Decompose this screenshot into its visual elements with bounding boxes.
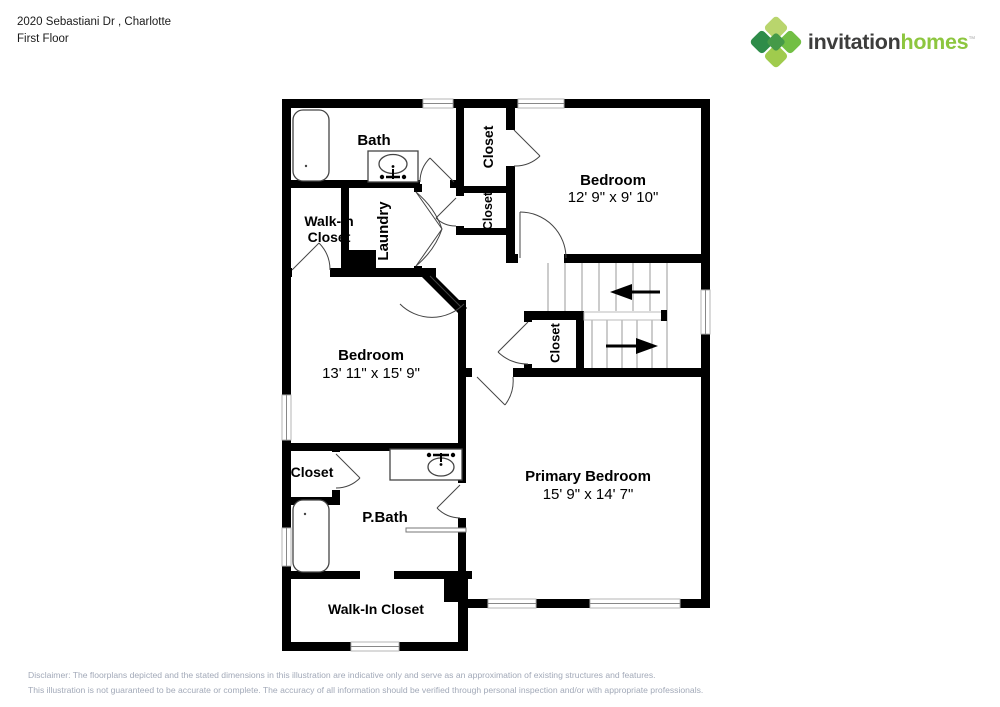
sink-icon [368,151,418,182]
room-label-closet-bedroom2: Closet [480,125,496,168]
room-label-primary-bedroom: Primary Bedroom [525,468,651,485]
disclaimer-block: Disclaimer: The floorplans depicted and … [28,668,703,697]
window-icon [282,395,291,440]
room-label-closet-hall: Closet [481,191,495,230]
floorplan-page: 2020 Sebastiani Dr , Charlotte First Flo… [0,0,1000,707]
disclaimer-line-2: This illustration is not guaranteed to b… [28,683,703,698]
window-icon [590,599,680,608]
sink-icon [390,449,462,480]
room-dims-bedroom2: 12' 9" x 9' 10" [568,189,659,206]
towel-bar-icon [406,528,466,532]
room-label-bedroom2: Bedroom [580,172,646,189]
window-icon [423,99,453,108]
stair-arrow-down-icon [606,338,658,354]
bathtub-icon [293,110,329,181]
bathtub-icon [293,500,329,572]
disclaimer-line-1: Disclaimer: The floorplans depicted and … [28,668,703,683]
door-arc [514,130,540,166]
window-icon [282,528,291,566]
door-arc [420,158,454,182]
door-arc [336,454,360,488]
door-arc [292,243,330,270]
stair-arrow-up-icon [610,284,660,300]
bifold-door [416,192,442,266]
door-arc [498,322,528,364]
room-label-bedroom1: Bedroom [338,347,404,364]
door-arc [520,212,566,258]
door-arc [437,485,460,518]
fixture-layer [293,110,466,572]
window-icon [701,290,710,334]
stair-landing-rail [584,310,667,321]
room-label-walkin-upper-line2: Closet [308,229,351,245]
room-dims-primary-bedroom: 15' 9" x 14' 7" [543,486,634,503]
window-icon [351,642,399,651]
room-label-pbath: P.Bath [362,509,408,526]
room-dims-bedroom1: 13' 11" x 15' 9" [322,365,420,382]
room-label-walkin-lower: Walk-In Closet [328,601,424,617]
floor-plan: Bath Closet Closet Bedroom 12' 9" x 9' 1… [0,0,1000,707]
room-label-bath: Bath [357,132,390,149]
door-arc [477,377,513,405]
room-label-walkin-upper-line1: Walk-In [304,213,353,229]
window-icon [488,599,536,608]
room-label-closet-pbath: Closet [291,464,334,480]
room-label-closet-stairs: Closet [548,322,563,362]
window-icon [518,99,564,108]
room-label-laundry: Laundry [375,201,392,261]
